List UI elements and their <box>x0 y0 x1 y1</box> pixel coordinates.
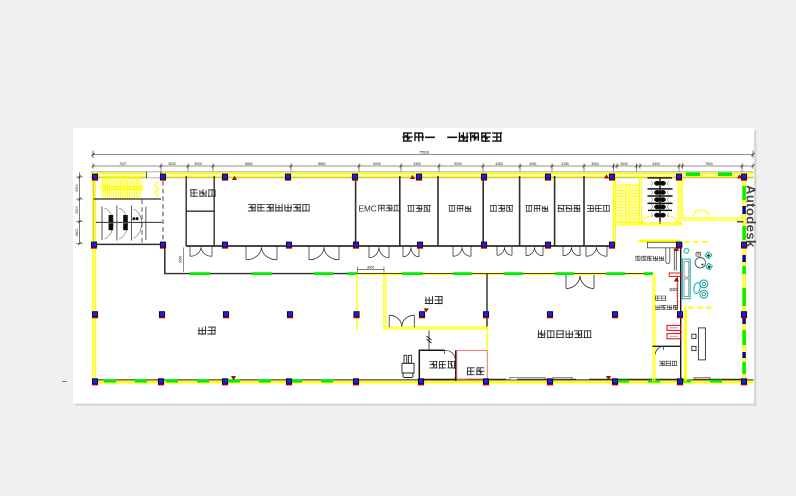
svg-text:3000: 3000 <box>179 256 183 264</box>
svg-text:3150: 3150 <box>561 162 569 166</box>
svg-text:EMC: EMC <box>359 205 377 214</box>
svg-text:2640: 2640 <box>620 162 628 166</box>
svg-text:8862: 8862 <box>245 162 253 166</box>
svg-text:7027: 7027 <box>119 162 127 166</box>
svg-text:8862: 8862 <box>318 162 326 166</box>
svg-text:4400: 4400 <box>652 162 660 166</box>
svg-text:3054: 3054 <box>591 162 599 166</box>
svg-text:3300: 3300 <box>75 184 79 192</box>
svg-text:3000: 3000 <box>168 162 176 166</box>
svg-text:3000: 3000 <box>194 162 202 166</box>
svg-text:75528: 75528 <box>419 150 429 154</box>
svg-text:3300: 3300 <box>75 206 79 214</box>
svg-text:2400: 2400 <box>75 229 79 237</box>
svg-text:5000: 5000 <box>373 162 381 166</box>
svg-text:5000: 5000 <box>454 162 462 166</box>
svg-text:4350: 4350 <box>413 162 421 166</box>
svg-text:3061: 3061 <box>529 162 537 166</box>
svg-text:3000: 3000 <box>367 266 375 270</box>
svg-text:Autodesk: Autodesk <box>744 185 759 248</box>
svg-text:4350: 4350 <box>495 162 503 166</box>
svg-text:7500: 7500 <box>705 162 713 166</box>
